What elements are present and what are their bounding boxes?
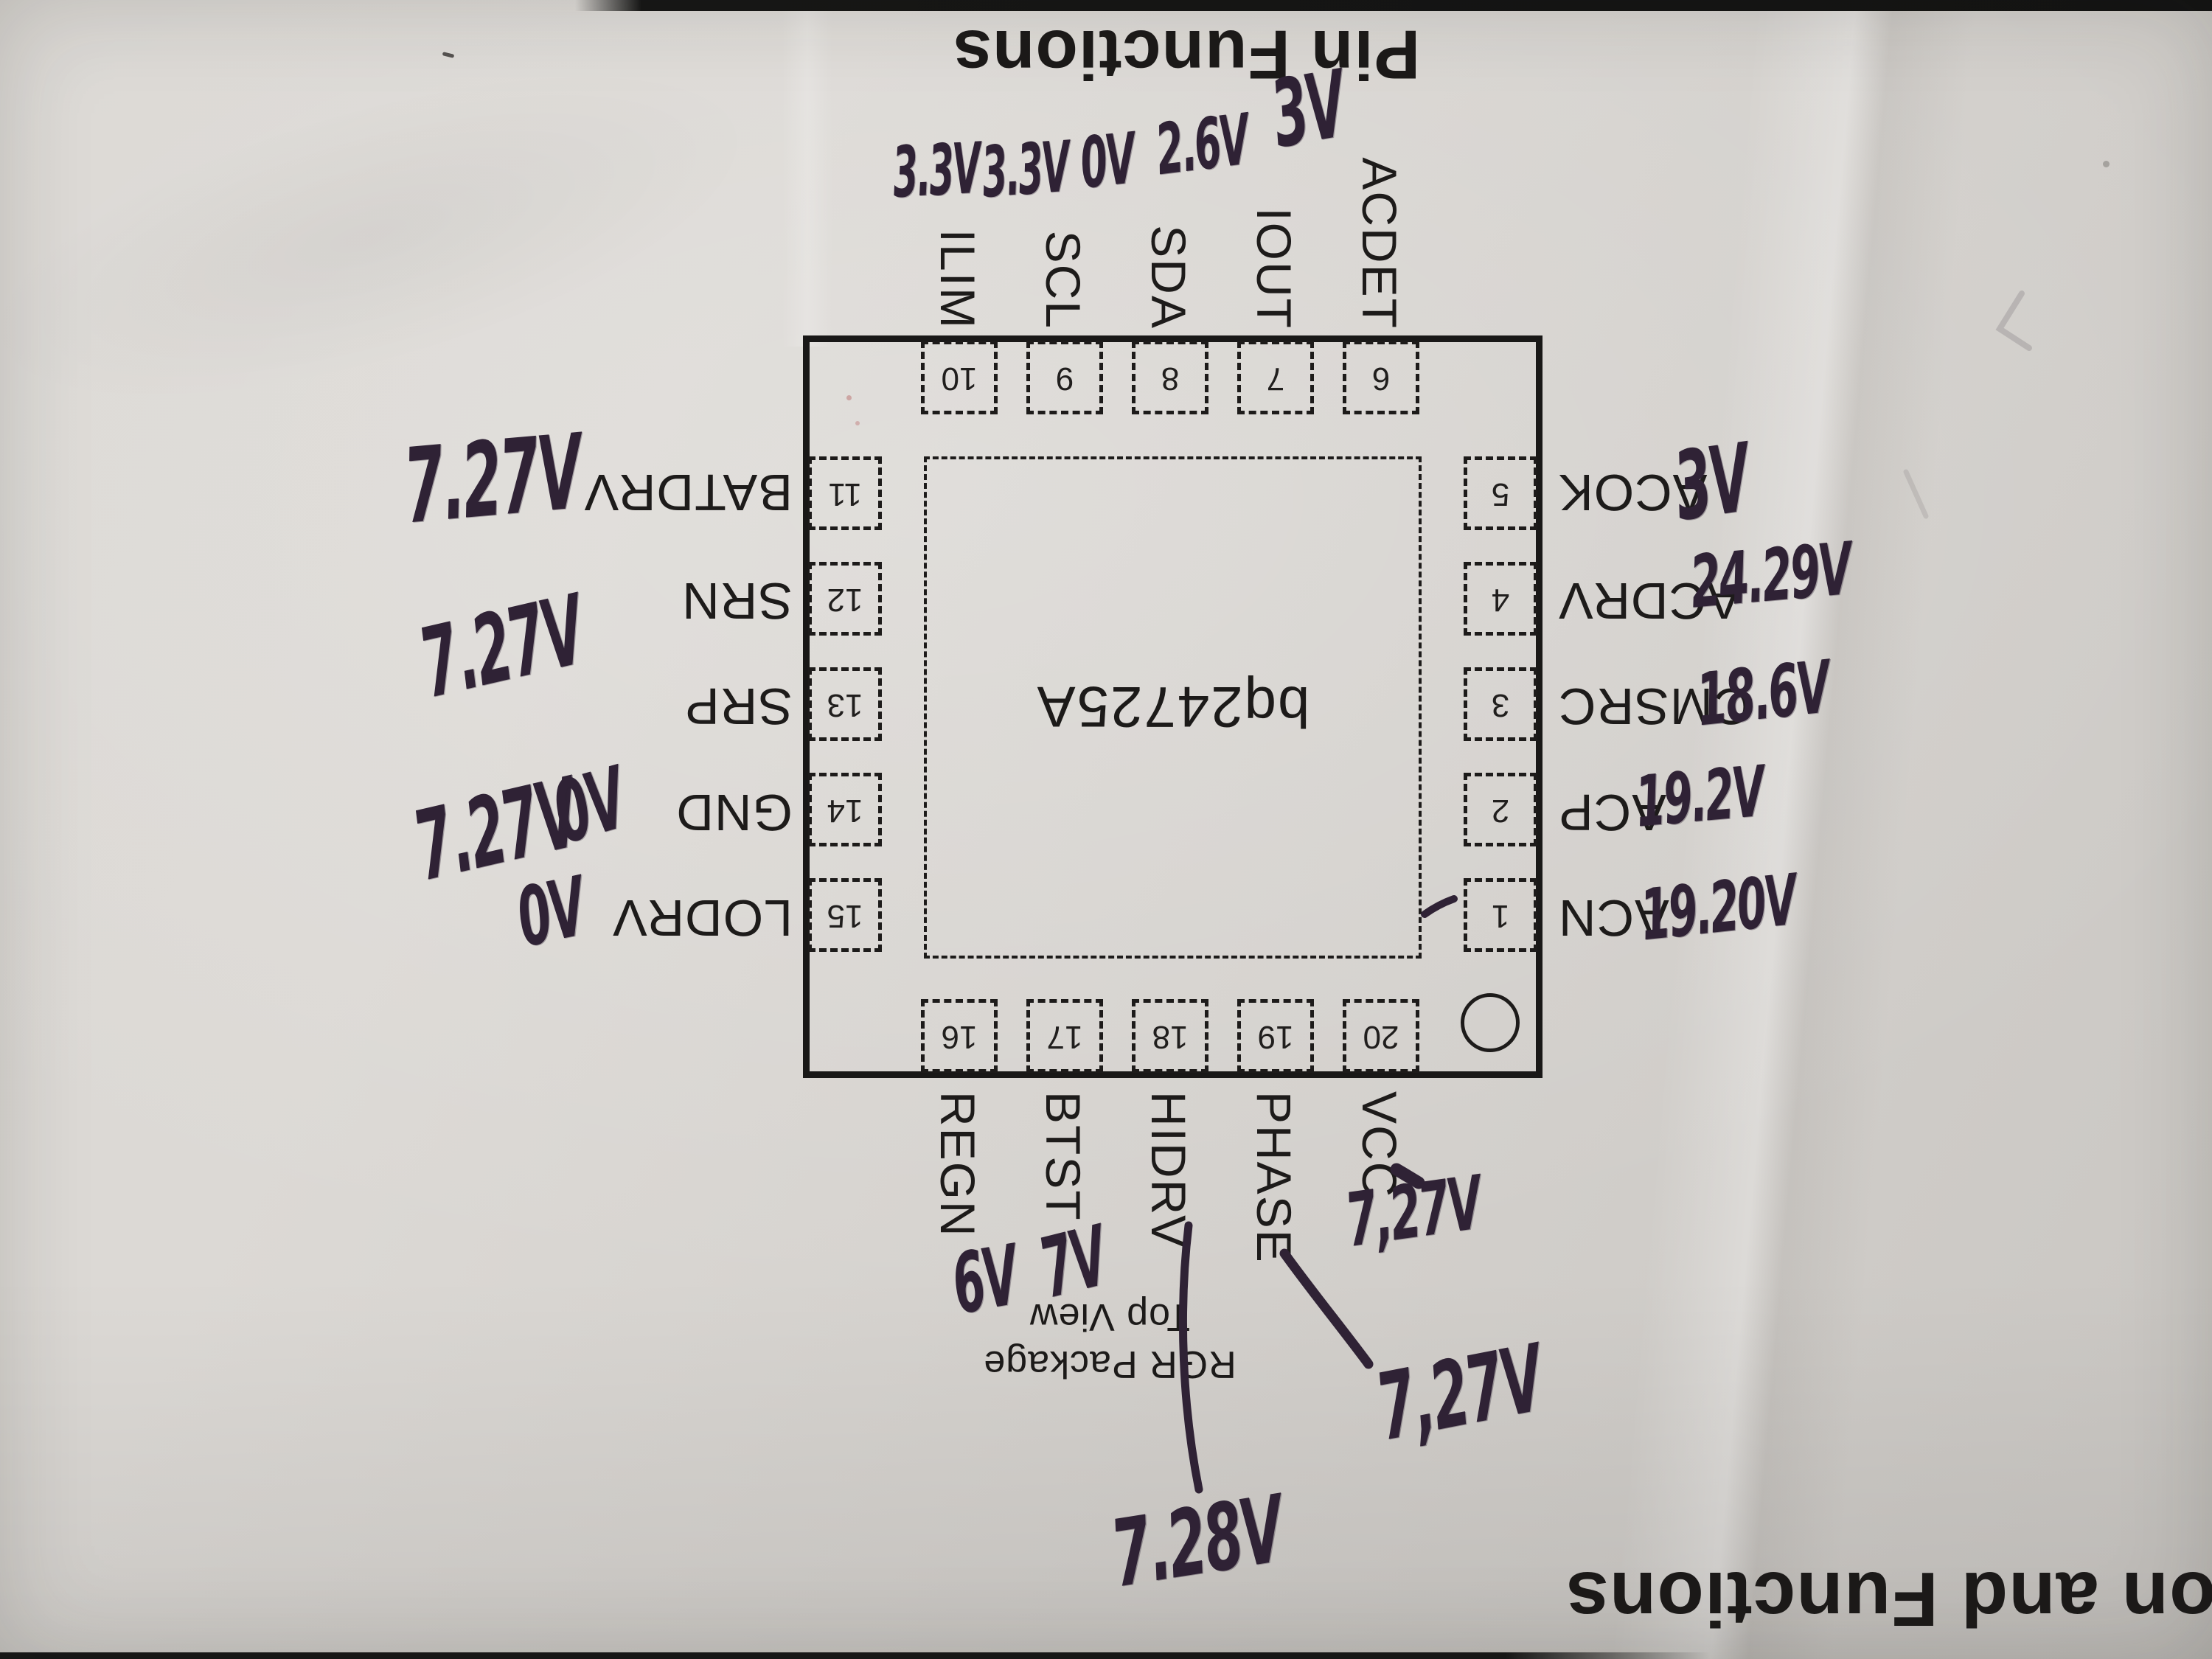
hidrv-pointer-line xyxy=(1183,1225,1199,1489)
phase-pointer-line xyxy=(1284,1253,1368,1364)
vcc-ink-blob xyxy=(1397,1169,1419,1183)
photo-of-annotated-datasheet-page: Pin Functions on and Functions 10 9 8 7 … xyxy=(0,0,2212,1659)
handwritten-strokes-layer xyxy=(0,0,2212,1659)
faint-smudge-mark xyxy=(1906,472,1926,516)
faint-smudge-mark xyxy=(2000,293,2029,348)
pin1-tick-mark xyxy=(1425,899,1454,914)
